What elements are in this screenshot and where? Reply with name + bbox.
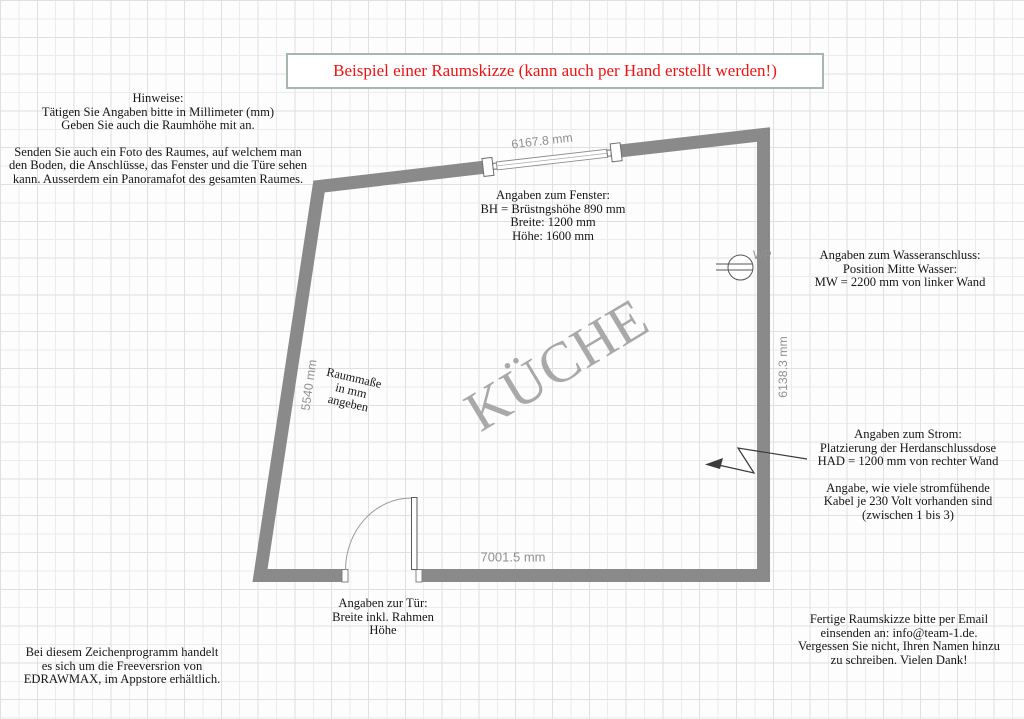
lightning-arrowhead [705, 458, 723, 469]
note-line: Angaben zum Fenster: [481, 189, 626, 203]
wall-left-and-bottom-left[interactable] [260, 167, 486, 576]
dimension-right-wall[interactable]: 6138.3 mm [776, 336, 790, 398]
note-fenster[interactable]: Angaben zum Fenster: BH = Brüstngshöhe 8… [481, 189, 626, 243]
note-line: den Boden, die Anschlüsse, das Fenster u… [9, 159, 307, 173]
note-email[interactable]: Fertige Raumskizze bitte per Email einse… [798, 613, 1000, 667]
door-panel [412, 498, 418, 570]
note-line: einsenden an: info@team-1.de. [798, 627, 1000, 641]
note-line: Tätigen Sie Angaben bitte in Millimeter … [9, 106, 307, 120]
note-line: Position Mitte Wasser: [815, 263, 986, 277]
note-line: (zwischen 1 bis 3) [818, 509, 999, 523]
water-point-circle [728, 255, 753, 280]
note-line: Breite: 1200 mm [481, 216, 626, 230]
note-line: Breite inkl. Rahmen [332, 611, 434, 625]
note-line: kann. Ausserdem ein Panoramafot des gesa… [9, 173, 307, 187]
note-line: Platzierung der Herdanschlussdose [818, 442, 999, 456]
note-line: Vergessen Sie nicht, Ihren Namen hinzu [798, 640, 1000, 654]
note-line: BH = Brüstngshöhe 890 mm [481, 203, 626, 217]
note-line: Höhe: 1600 mm [481, 230, 626, 244]
title-box[interactable]: Beispiel einer Raumskizze (kann auch per… [286, 53, 824, 89]
note-strom[interactable]: Angaben zum Strom: Platzierung der Herda… [818, 428, 999, 523]
water-point-label: WP [753, 250, 772, 262]
note-line: Hinweise: [9, 92, 307, 106]
door-swing-arc [346, 498, 412, 570]
dimension-bottom-wall[interactable]: 7001.5 mm [480, 550, 545, 565]
note-hinweise[interactable]: Hinweise: Tätigen Sie Angaben bitte in M… [9, 92, 307, 187]
window-frame-right [610, 143, 622, 162]
note-line: zu schreiben. Vielen Dank! [798, 654, 1000, 668]
note-gap [9, 133, 307, 146]
note-line: Angaben zum Strom: [818, 428, 999, 442]
note-programm[interactable]: Bei diesem Zeichenprogramm handelt es si… [24, 646, 221, 687]
note-line: es sich um die Freeversrion von [24, 660, 221, 674]
note-line: Höhe [332, 624, 434, 638]
note-wasseranschluss[interactable]: Angaben zum Wasseranschluss: Position Mi… [815, 249, 986, 290]
window-frame-left [482, 157, 494, 176]
door-symbol[interactable] [342, 498, 422, 583]
door-frame-right [416, 570, 422, 583]
note-line: Senden Sie auch ein Foto des Raumes, auf… [9, 146, 307, 160]
door-frame-left [342, 570, 348, 583]
water-connection-symbol[interactable] [716, 255, 753, 280]
note-line: Angaben zum Wasseranschluss: [815, 249, 986, 263]
note-line: Bei diesem Zeichenprogramm handelt [24, 646, 221, 660]
note-line: Kabel je 230 Volt vorhanden sind [818, 495, 999, 509]
window-symbol[interactable] [482, 143, 622, 177]
title-text: Beispiel einer Raumskizze (kann auch per… [333, 61, 777, 80]
note-line: Angabe, wie viele stromfühende [818, 482, 999, 496]
note-line: Fertige Raumskizze bitte per Email [798, 613, 1000, 627]
electric-arrow-symbol[interactable] [705, 448, 807, 473]
note-line: EDRAWMAX, im Appstore erhältlich. [24, 673, 221, 687]
note-line: Angaben zur Tür: [332, 597, 434, 611]
note-tuer[interactable]: Angaben zur Tür: Breite inkl. Rahmen Höh… [332, 597, 434, 638]
note-line: HAD = 1200 mm von rechter Wand [818, 455, 999, 469]
note-line: MW = 2200 mm von linker Wand [815, 276, 986, 290]
drawing-canvas: Beispiel einer Raumskizze (kann auch per… [0, 0, 1024, 719]
note-gap [818, 469, 999, 482]
note-line: Geben Sie auch die Raumhöhe mit an. [9, 119, 307, 133]
